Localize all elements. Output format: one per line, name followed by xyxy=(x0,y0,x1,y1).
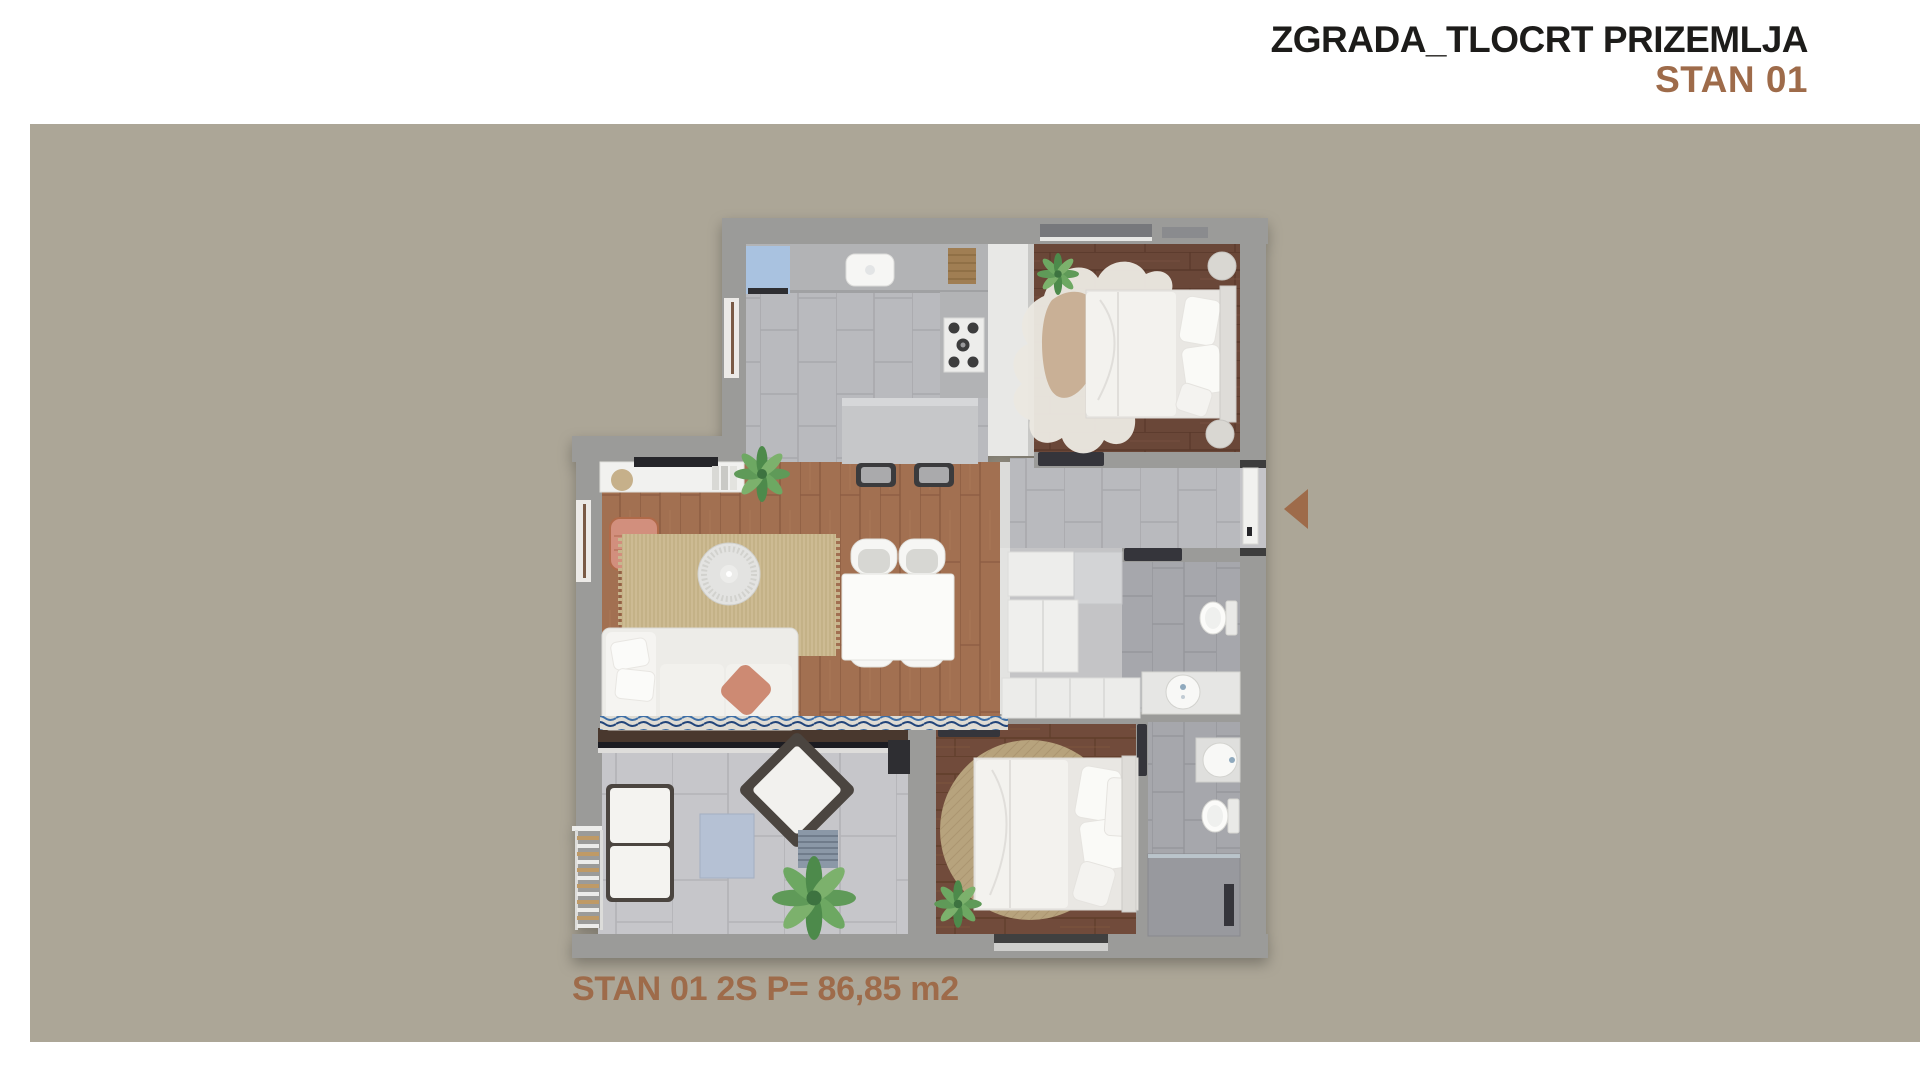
bed2-duvet xyxy=(976,760,1068,908)
bed1 xyxy=(1086,286,1236,422)
dining-chair xyxy=(899,539,945,574)
table-dot xyxy=(726,571,732,577)
bedroom1-window-2 xyxy=(1162,227,1208,238)
kitchen-peninsula xyxy=(842,398,978,464)
shower-drain xyxy=(1224,884,1234,926)
kitchen-window-frame xyxy=(731,302,734,374)
living-window-frame xyxy=(583,504,586,578)
bedroom2-window xyxy=(994,934,1108,943)
terrace-glass-door xyxy=(598,728,908,753)
sink-drain xyxy=(1181,695,1185,699)
toilet xyxy=(1202,799,1239,833)
sofa xyxy=(602,628,798,730)
sofa-pillow xyxy=(615,668,656,702)
cabinet-base xyxy=(748,288,788,294)
tv xyxy=(634,457,718,467)
page: ZGRADA_TLOCRT PRIZEMLJA STAN 01 xyxy=(0,0,1920,1071)
dining-chair xyxy=(851,539,897,574)
outdoor-sofa xyxy=(606,784,674,902)
bathroom1-sliding-door xyxy=(1124,548,1182,561)
burner xyxy=(949,357,960,368)
burner xyxy=(968,357,979,368)
kitchen-sink-cabinet xyxy=(746,246,790,294)
books xyxy=(730,466,737,490)
bed1-headboard xyxy=(1220,286,1236,422)
shower-glass xyxy=(1148,854,1240,858)
ladder-rail xyxy=(600,830,603,930)
sofa-pillow xyxy=(610,637,650,671)
nightstand xyxy=(1206,420,1234,448)
bedroom1-sliding-door xyxy=(1038,452,1104,466)
door-outer-sill xyxy=(598,748,908,753)
faucet xyxy=(1229,757,1235,763)
faucet xyxy=(1180,684,1186,690)
entrance-jamb-top xyxy=(1240,460,1266,468)
entrance-arrow-icon xyxy=(1284,489,1308,529)
wall-right xyxy=(1240,218,1266,958)
bed2 xyxy=(974,756,1138,912)
floor-plan-svg xyxy=(0,0,1920,1071)
cabinet xyxy=(1074,552,1122,604)
threshold-living-hall xyxy=(1000,462,1010,548)
bedroom1-plant xyxy=(1037,253,1079,295)
toilet xyxy=(1200,601,1237,635)
burner-ring xyxy=(961,343,966,348)
dining-table xyxy=(842,574,954,660)
bed2-headboard xyxy=(1122,756,1136,912)
terrace-plant xyxy=(772,856,856,940)
burner xyxy=(949,323,960,334)
cooktop xyxy=(944,318,984,372)
bedroom2-window-sill xyxy=(994,943,1108,951)
sofa-cushion xyxy=(610,788,670,843)
terrace-table xyxy=(700,814,754,878)
pillow xyxy=(1178,295,1221,347)
area-label: STAN 01 2S P= 86,85 m2 xyxy=(572,970,959,1009)
bedroom1-window-sill xyxy=(1040,237,1152,241)
floor-plan xyxy=(572,218,1268,958)
living-plant xyxy=(734,446,790,502)
bedroom1-window xyxy=(1040,224,1152,239)
round-sink xyxy=(1166,675,1200,709)
nightstand xyxy=(1208,252,1236,280)
blue-runner-rug xyxy=(600,716,1008,730)
entrance-door-handle xyxy=(1247,527,1252,536)
hallway-floor xyxy=(1010,458,1240,550)
dried-grass-decor xyxy=(611,469,633,491)
shower xyxy=(1148,854,1240,936)
closet xyxy=(1008,552,1074,596)
books xyxy=(721,466,728,490)
coffee-table xyxy=(698,543,760,605)
books xyxy=(712,466,719,490)
door-frame xyxy=(598,742,908,748)
outdoor-unit xyxy=(888,740,910,774)
burner xyxy=(968,323,979,334)
sofa-cushion xyxy=(610,846,670,898)
wall-terrace-bedroom2 xyxy=(908,722,936,958)
peninsula-top xyxy=(842,398,978,406)
entrance-jamb-bottom xyxy=(1240,548,1266,556)
bar-stool xyxy=(914,463,954,487)
bedroom2-plant xyxy=(934,880,982,928)
bar-stool xyxy=(856,463,896,487)
sink-drain xyxy=(865,265,875,275)
entrance-door xyxy=(1240,460,1266,556)
bedroom2 xyxy=(934,740,1138,928)
